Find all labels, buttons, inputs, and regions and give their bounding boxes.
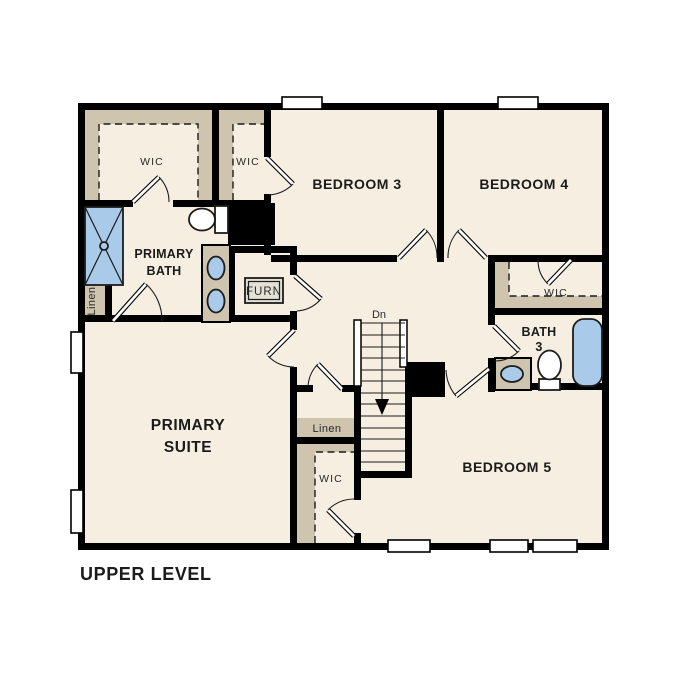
primary-bath-label-line1: PRIMARY	[134, 247, 194, 261]
wic-hall-label: WIC	[319, 473, 343, 485]
furnace-label: FURN	[246, 286, 282, 298]
double-vanity-icon	[202, 245, 230, 322]
floor-plan-page: WIC WIC BEDROOM 3 BEDROOM 4 PRIMARY BATH…	[0, 0, 687, 687]
bedroom5-label: BEDROOM 5	[462, 459, 551, 475]
window-primary-suite-lower	[71, 490, 83, 533]
primary-suite-label-line2: SUITE	[164, 439, 212, 456]
window-bedroom5-mid	[490, 540, 528, 552]
page-title: UPPER LEVEL	[80, 564, 212, 584]
linen-bath-label: Linen	[86, 287, 98, 316]
chase-block-bath	[228, 203, 275, 245]
primary-suite-label-line1: PRIMARY	[151, 417, 226, 434]
vanity-sink-icon-bath3	[495, 358, 531, 390]
stair-railing-right	[400, 320, 407, 367]
chase-block-stairs	[405, 362, 445, 397]
window-bedroom5-left	[388, 540, 430, 552]
toilet-icon-bath3	[538, 351, 561, 391]
bath3-label-line1: BATH	[522, 325, 557, 339]
bedroom3-label: BEDROOM 3	[312, 176, 401, 192]
window-bedroom4	[498, 97, 538, 109]
wic-primary-label: WIC	[140, 156, 164, 168]
wic-bedroom4-label: WIC	[544, 287, 568, 299]
bedroom4-label: BEDROOM 4	[479, 176, 568, 192]
bathtub-icon	[573, 319, 602, 386]
floor-plan-drawing: WIC WIC BEDROOM 3 BEDROOM 4 PRIMARY BATH…	[0, 0, 687, 687]
primary-bath-label-line2: BATH	[147, 264, 182, 278]
stair-railing-left	[354, 320, 361, 386]
toilet-icon-primary	[189, 206, 228, 233]
linen-hall-label: Linen	[313, 423, 342, 435]
window-bedroom3	[282, 97, 322, 109]
wic-bedroom3-label: WIC	[236, 156, 260, 168]
bath3-label-line2: 3	[535, 340, 542, 354]
window-primary-suite-upper	[71, 332, 83, 373]
window-bedroom5-right	[533, 540, 577, 552]
shower-icon	[85, 207, 123, 285]
stairs-down-label: Dn	[372, 309, 386, 321]
